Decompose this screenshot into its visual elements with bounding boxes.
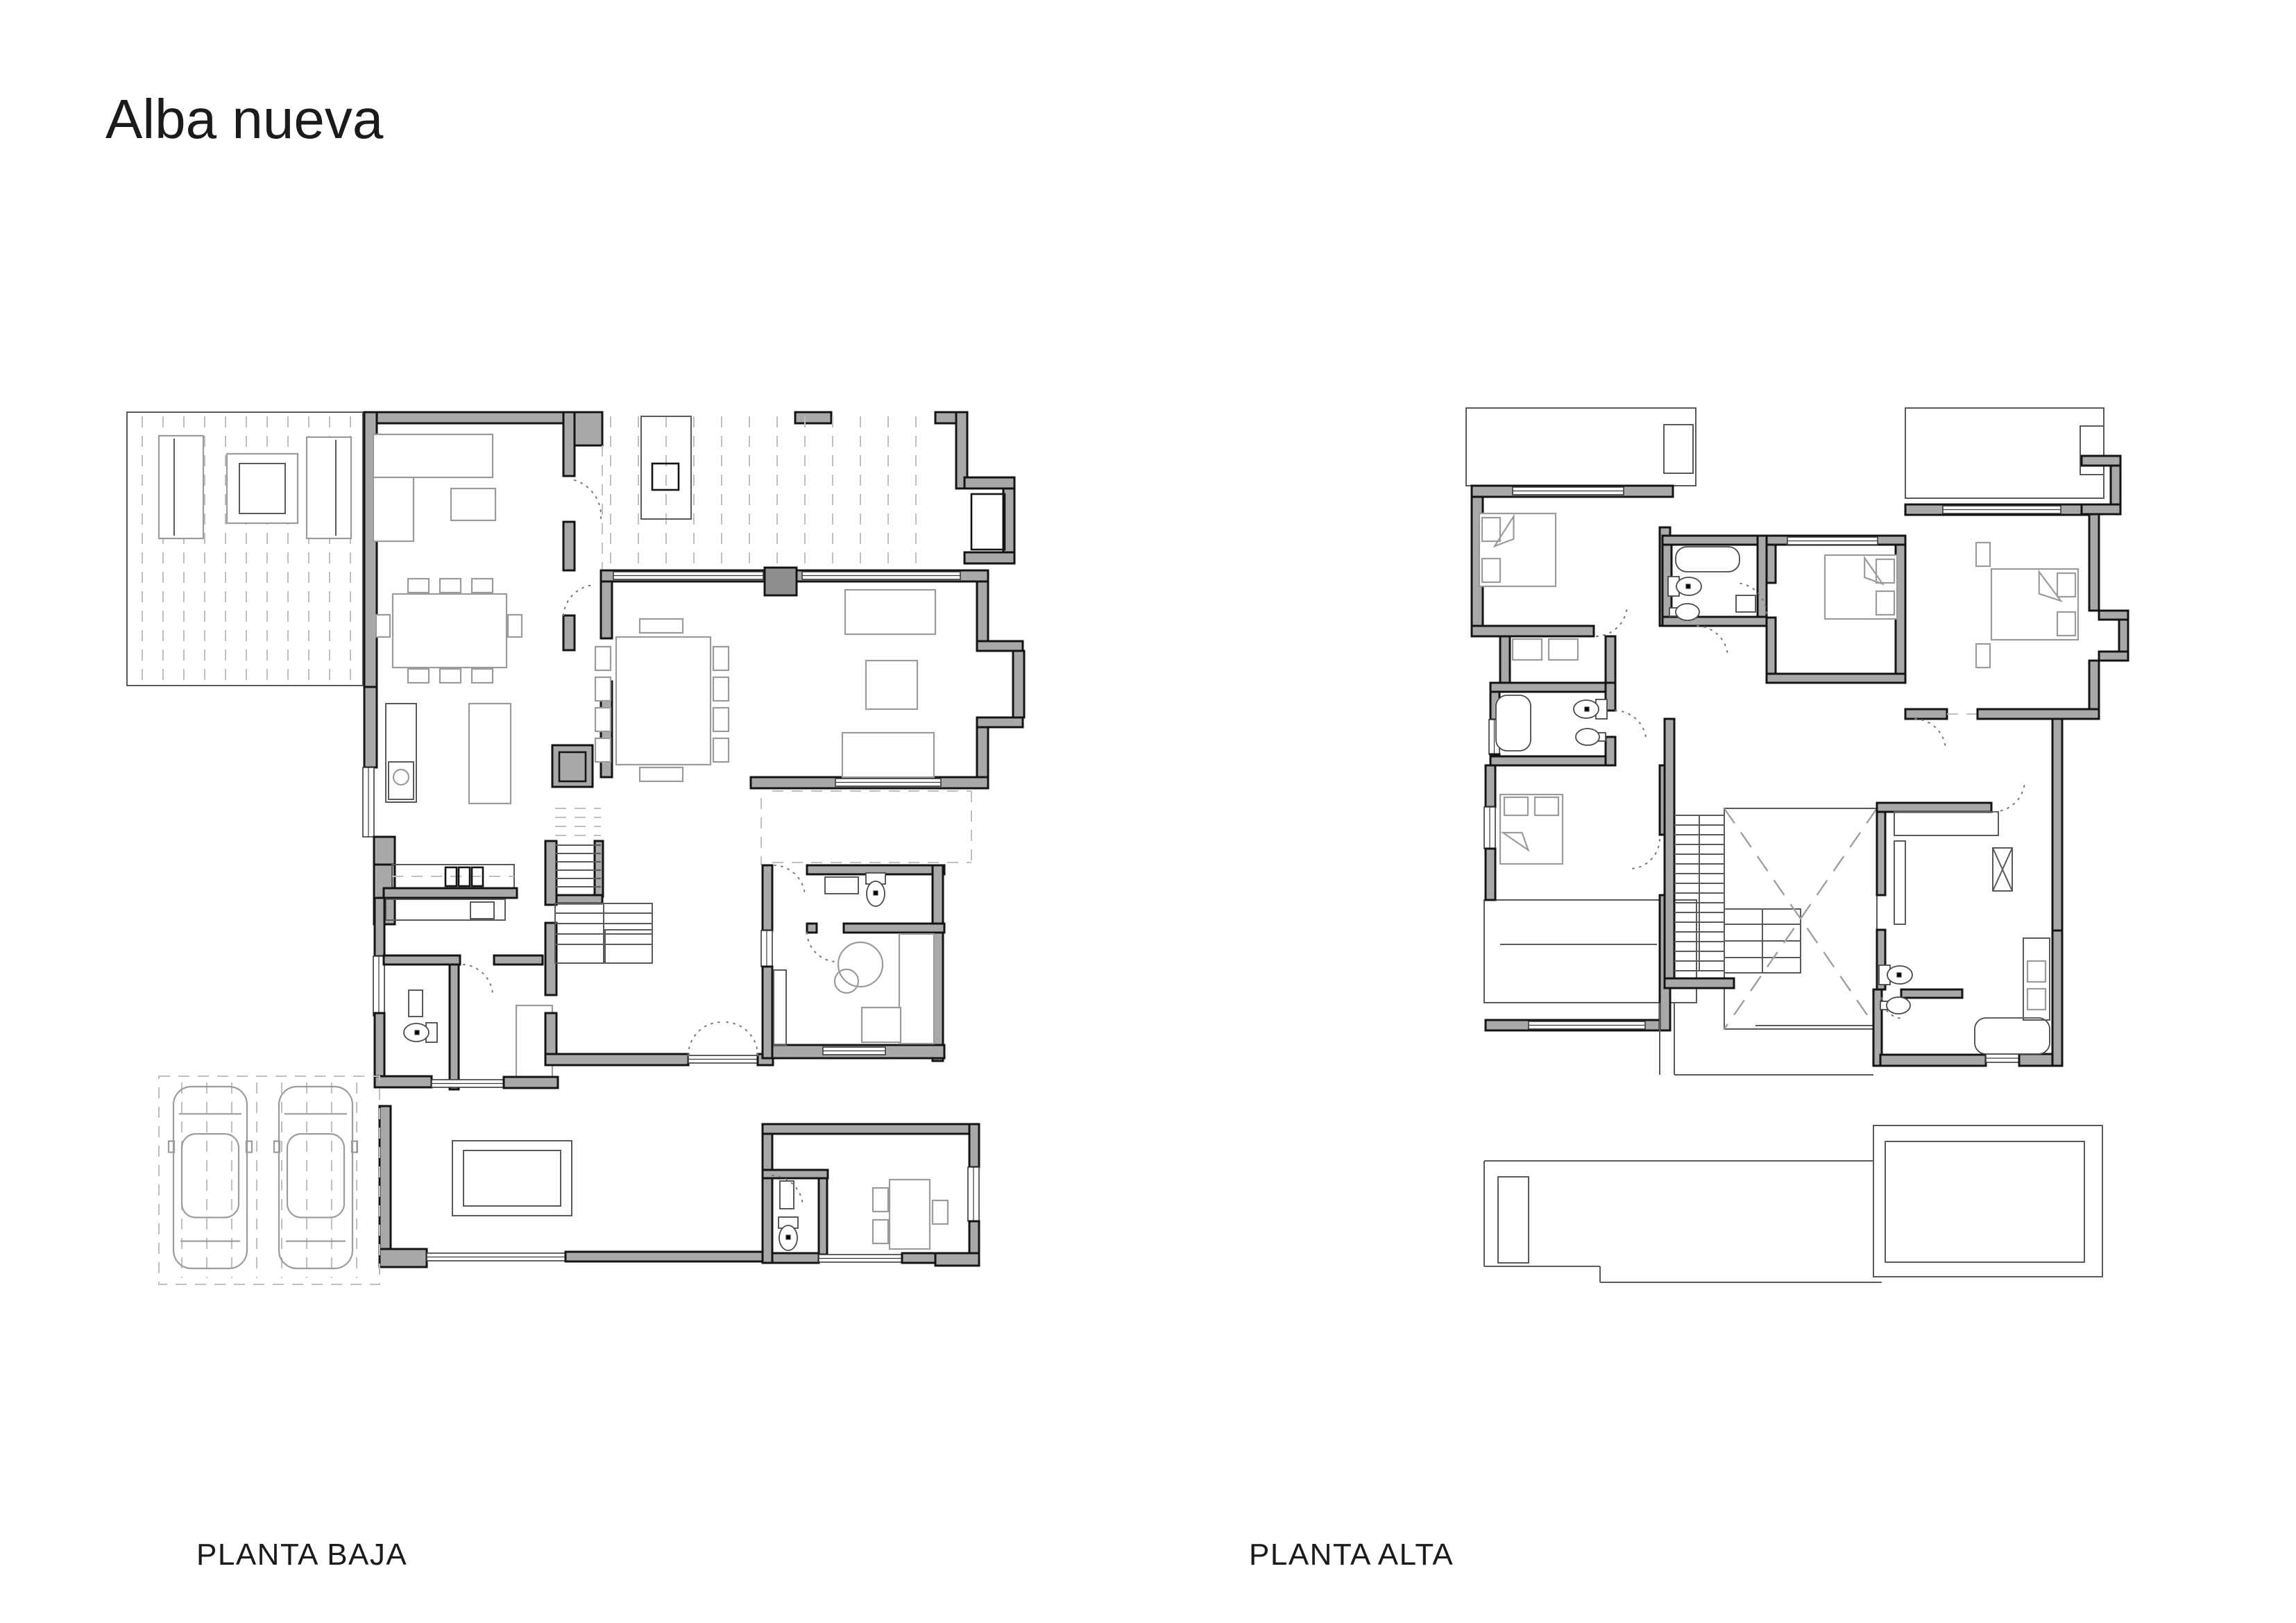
carport: [159, 1076, 380, 1284]
patio-office: [380, 1106, 979, 1267]
toilet-icon: [1668, 577, 1701, 596]
label-planta-alta: PLANTA ALTA: [1249, 1538, 1454, 1572]
pergola-terrace: [575, 412, 1014, 569]
toilet-icon: [866, 873, 885, 906]
bed-icon: [1991, 569, 2078, 640]
master-dressing: [1877, 719, 2062, 989]
toilet-icon: [1879, 965, 1912, 985]
planta-alta-drawing: [1466, 408, 2128, 1282]
stairs-and-void: [1665, 719, 1877, 1029]
study-room: [761, 865, 944, 1061]
bidet-icon: [1576, 729, 1606, 745]
main-living-room: [552, 568, 1024, 788]
toilet-icon: [404, 1023, 437, 1042]
bed-icon: [1500, 794, 1563, 864]
central-bathroom: [1663, 536, 1767, 656]
deck-terrace: [127, 412, 363, 686]
label-planta-baja: PLANTA BAJA: [196, 1538, 407, 1572]
bidet-icon: [1880, 997, 1910, 1014]
bedroom-1: [1472, 486, 1673, 636]
car-icon: [169, 1087, 252, 1268]
dressing-1: [1500, 636, 1615, 683]
bathroom-2: [1489, 683, 1646, 765]
floor-plan-canvas: [0, 0, 2296, 1623]
service-bath-bedroom: [373, 898, 558, 1089]
planta-baja-drawing: [127, 412, 1024, 1284]
toilet-icon: [779, 1217, 798, 1250]
kitchen: [363, 687, 517, 924]
bedroom-2: [1484, 765, 1670, 1030]
toilet-icon: [1574, 699, 1607, 719]
page: { "page": { "title": "Alba nueva", "back…: [0, 0, 2296, 1623]
car-icon: [274, 1087, 357, 1268]
bed-icon: [1825, 555, 1897, 619]
bed-icon: [1479, 513, 1556, 586]
master-bedroom: [1905, 456, 2128, 749]
master-bathroom: [1873, 931, 2062, 1066]
